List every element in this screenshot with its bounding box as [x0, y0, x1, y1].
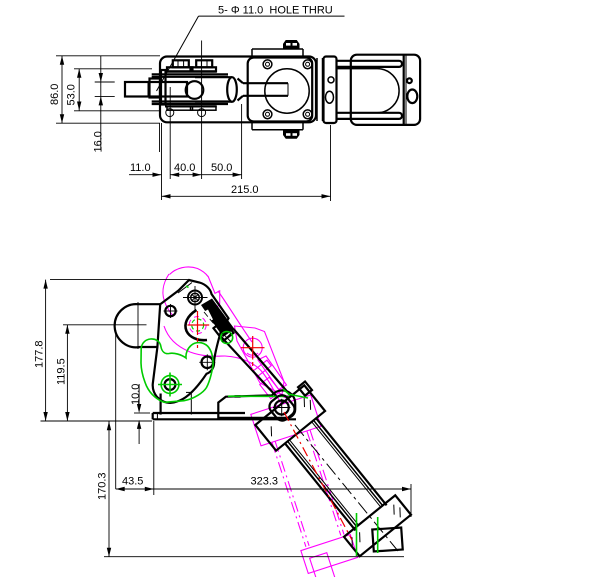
- svg-text:86.0: 86.0: [49, 84, 61, 105]
- svg-text:119.5: 119.5: [56, 358, 68, 385]
- svg-text:177.8: 177.8: [34, 340, 46, 368]
- svg-text:40.0: 40.0: [174, 162, 195, 174]
- svg-text:170.3: 170.3: [97, 472, 109, 500]
- svg-text:53.0: 53.0: [66, 84, 78, 105]
- svg-text:16.0: 16.0: [93, 131, 105, 152]
- svg-text:215.0: 215.0: [231, 184, 259, 196]
- svg-text:323.3: 323.3: [251, 476, 279, 488]
- svg-text:50.0: 50.0: [211, 162, 232, 174]
- svg-text:10.0: 10.0: [130, 384, 142, 405]
- svg-text:11.0: 11.0: [130, 162, 151, 174]
- svg-text:5- Φ 11.0 HOLE THRU: 5- Φ 11.0 HOLE THRU: [218, 5, 333, 17]
- svg-text:43.5: 43.5: [122, 476, 143, 488]
